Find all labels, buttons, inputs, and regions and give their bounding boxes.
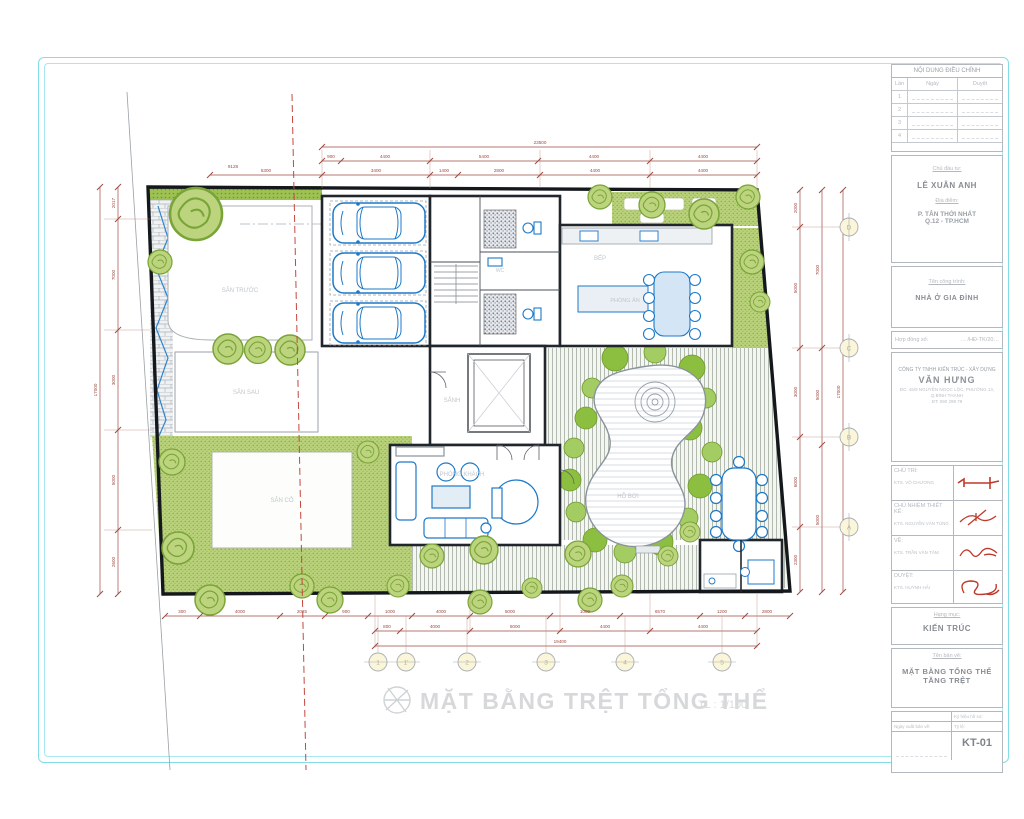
category-section: Hạng mục: KIẾN TRÚC bbox=[891, 607, 1003, 645]
svg-text:4400: 4400 bbox=[698, 168, 709, 173]
svg-text:A: A bbox=[847, 525, 852, 532]
sheet-name-line1: MẶT BẰNG TỔNG THỂ bbox=[894, 667, 1000, 676]
svg-text:300: 300 bbox=[178, 609, 186, 614]
project-section: Tên công trình: NHÀ Ở GIA ĐÌNH bbox=[891, 266, 1003, 328]
project-label: Tên công trình: bbox=[894, 279, 1000, 285]
signature-row: CHỦ TRÌ: KTS. VÕ CHƯƠNG bbox=[892, 466, 1002, 501]
svg-text:900: 900 bbox=[342, 609, 350, 614]
revision-cell bbox=[908, 130, 958, 143]
signature-row: DUYỆT: KTS. HUỲNH HẢI bbox=[892, 571, 1002, 604]
revision-cell bbox=[908, 104, 958, 117]
car-2 bbox=[333, 252, 425, 294]
contract-row: Hợp đồng số: … /HĐ-TK/20… bbox=[891, 331, 1003, 349]
client-label: Chủ đầu tư: bbox=[894, 166, 1000, 172]
revision-col-duyet: Duyệt bbox=[958, 78, 1002, 91]
svg-text:SÂN TRƯỚC: SÂN TRƯỚC bbox=[222, 287, 259, 294]
revision-cell bbox=[958, 130, 1002, 143]
revision-col-lan: Lần bbox=[892, 78, 908, 91]
svg-text:9128: 9128 bbox=[228, 164, 239, 169]
title-block-panel: NỘI DUNG ĐIỀU CHỈNH Lần Ngày Duyệt 1 2 3… bbox=[891, 64, 1003, 758]
svg-text:5400: 5400 bbox=[479, 154, 490, 159]
signatures-section: CHỦ TRÌ: KTS. VÕ CHƯƠNG CHỦ NHIỆM THIẾT … bbox=[891, 465, 1003, 604]
revision-cell bbox=[958, 91, 1002, 104]
issue-label: Ngày xuất bản vẽ: bbox=[892, 722, 952, 732]
revision-row-num: 4 bbox=[892, 130, 908, 143]
meta-section: Ký hiệu hồ sơ: Ngày xuất bản vẽ: Tỷ lệ: … bbox=[891, 711, 1003, 773]
svg-text:HỒ BƠI: HỒ BƠI bbox=[617, 493, 639, 500]
sign-name: KTS. VÕ CHƯƠNG bbox=[894, 480, 951, 485]
sign-label: VẼ: bbox=[894, 538, 951, 544]
svg-text:4000: 4000 bbox=[235, 609, 246, 614]
site-label: Địa điểm: bbox=[894, 198, 1000, 204]
svg-text:4400: 4400 bbox=[590, 168, 601, 173]
svg-text:2: 2 bbox=[465, 660, 469, 667]
drawing-title-group: MẶT BẰNG TRỆT TỔNG THỂ TL : 1/100 bbox=[384, 687, 769, 714]
svg-text:SÂN SAU: SÂN SAU bbox=[233, 389, 259, 396]
sheet-name-line2: TẦNG TRỆT bbox=[894, 676, 1000, 685]
client-section: Chủ đầu tư: LÊ XUÂN ANH Địa điểm: P. TÂN… bbox=[891, 155, 1003, 263]
signature-mark bbox=[956, 578, 1000, 598]
firm-section: CÔNG TY TNHH KIẾN TRÚC - XÂY DỰNG VĂN HƯ… bbox=[891, 352, 1003, 462]
svg-text:7000: 7000 bbox=[815, 264, 820, 275]
room-hall bbox=[430, 346, 545, 445]
contract-value: … /HĐ-TK/20… bbox=[960, 337, 999, 343]
revision-col-ngay: Ngày bbox=[908, 78, 958, 91]
site-plan-drawing: 23500 900 4400 5400 4400 4400 5300 3400 … bbox=[0, 0, 892, 819]
meta-empty-cell bbox=[892, 712, 952, 722]
north-compass-icon bbox=[384, 687, 410, 713]
signature-mark bbox=[956, 508, 1000, 528]
sheet-name-label: Tên bản vẽ: bbox=[894, 653, 1000, 659]
dim: 23500 bbox=[534, 140, 547, 145]
sign-name: KTS. TRẦN VĂN TÂM bbox=[894, 550, 951, 555]
revision-row-num: 3 bbox=[892, 117, 908, 130]
sheet-name-section: Tên bản vẽ: MẶT BẰNG TỔNG THỂ TẦNG TRỆT bbox=[891, 648, 1003, 708]
sheet-code: KT-01 bbox=[954, 734, 1000, 749]
category-label: Hạng mục: bbox=[894, 612, 1000, 618]
svg-text:4400: 4400 bbox=[589, 154, 600, 159]
svg-text:2000: 2000 bbox=[793, 202, 798, 213]
svg-text:1': 1' bbox=[404, 660, 409, 667]
svg-text:19400: 19400 bbox=[554, 639, 567, 644]
project-name: NHÀ Ở GIA ĐÌNH bbox=[894, 295, 1000, 302]
issue-value-cell bbox=[892, 732, 952, 760]
revision-table: NỘI DUNG ĐIỀU CHỈNH Lần Ngày Duyệt 1 2 3… bbox=[891, 64, 1003, 152]
svg-text:3: 3 bbox=[544, 660, 548, 667]
revision-row-num: 1 bbox=[892, 91, 908, 104]
svg-text:4000: 4000 bbox=[436, 609, 447, 614]
category-value: KIẾN TRÚC bbox=[894, 624, 1000, 633]
svg-text:PHÒNG KHÁCH: PHÒNG KHÁCH bbox=[440, 471, 485, 478]
svg-text:5000: 5000 bbox=[111, 474, 116, 485]
revision-cell bbox=[908, 91, 958, 104]
svg-text:3000: 3000 bbox=[111, 374, 116, 385]
scale-label: Tỷ lệ: bbox=[952, 722, 1002, 732]
revision-cell bbox=[908, 117, 958, 130]
svg-text:B: B bbox=[847, 435, 851, 442]
svg-text:2800: 2800 bbox=[494, 168, 505, 173]
svg-text:1000: 1000 bbox=[385, 609, 396, 614]
sign-name: KTS. NGUYỄN VĂN TÙNG bbox=[894, 521, 951, 526]
revision-header: NỘI DUNG ĐIỀU CHỈNH bbox=[892, 65, 1002, 78]
svg-text:SÂN CỎ: SÂN CỎ bbox=[270, 497, 293, 504]
svg-text:1200: 1200 bbox=[717, 609, 728, 614]
svg-text:4400: 4400 bbox=[380, 154, 391, 159]
svg-text:17000: 17000 bbox=[836, 385, 841, 398]
code-label: Ký hiệu hồ sơ: bbox=[952, 712, 1002, 722]
firm-name: VĂN HƯNG bbox=[892, 375, 1002, 385]
wc1-tiles bbox=[484, 210, 516, 248]
svg-text:5000: 5000 bbox=[815, 389, 820, 400]
contract-label: Hợp đồng số: bbox=[895, 337, 928, 343]
revision-cell bbox=[958, 104, 1002, 117]
sheet-code-cell: KT-01 bbox=[952, 732, 1002, 760]
car-1 bbox=[333, 202, 425, 244]
svg-text:2017: 2017 bbox=[111, 197, 116, 208]
sign-label: DUYỆT: bbox=[894, 573, 951, 579]
svg-text:900: 900 bbox=[327, 154, 335, 159]
signature-mark bbox=[956, 473, 1000, 493]
firm-phone: ĐT: 090 299 79 bbox=[892, 399, 1002, 405]
svg-text:800: 800 bbox=[383, 624, 391, 629]
sign-name: KTS. HUỲNH HẢI bbox=[894, 585, 951, 590]
svg-text:7000: 7000 bbox=[111, 269, 116, 280]
svg-text:WC: WC bbox=[496, 268, 505, 274]
svg-text:1400: 1400 bbox=[439, 168, 450, 173]
svg-text:3000: 3000 bbox=[793, 386, 798, 397]
site-line2: Q.12 - TP.HCM bbox=[894, 218, 1000, 225]
svg-text:SẢNH: SẢNH bbox=[444, 397, 461, 404]
svg-text:5000: 5000 bbox=[505, 609, 516, 614]
svg-text:PHÒNG ĂN: PHÒNG ĂN bbox=[610, 297, 639, 304]
svg-text:6570: 6570 bbox=[655, 609, 666, 614]
client-name: LÊ XUÂN ANH bbox=[894, 181, 1000, 190]
sign-label: CHỦ TRÌ: bbox=[894, 468, 951, 474]
svg-text:4400: 4400 bbox=[698, 154, 709, 159]
signature-row: CHỦ NHIỆM THIẾT KẾ: KTS. NGUYỄN VĂN TÙNG bbox=[892, 501, 1002, 536]
svg-text:C: C bbox=[847, 346, 852, 353]
svg-text:2300: 2300 bbox=[793, 554, 798, 565]
sign-label: CHỦ NHIỆM THIẾT KẾ: bbox=[894, 503, 951, 515]
revision-row-num: 2 bbox=[892, 104, 908, 117]
svg-text:4400: 4400 bbox=[698, 624, 709, 629]
svg-text:1000: 1000 bbox=[580, 609, 591, 614]
signature-row: VẼ: KTS. TRẦN VĂN TÂM bbox=[892, 536, 1002, 571]
svg-text:5000: 5000 bbox=[815, 514, 820, 525]
svg-text:5: 5 bbox=[720, 660, 724, 667]
svg-text:17000: 17000 bbox=[93, 383, 98, 396]
signature-mark bbox=[956, 543, 1000, 563]
car-3 bbox=[333, 302, 425, 344]
svg-text:2025: 2025 bbox=[297, 609, 308, 614]
svg-text:6000: 6000 bbox=[793, 476, 798, 487]
svg-text:4000: 4000 bbox=[430, 624, 441, 629]
wc2-tiles bbox=[484, 294, 516, 334]
svg-text:2800: 2800 bbox=[762, 609, 773, 614]
svg-text:5300: 5300 bbox=[261, 168, 272, 173]
svg-text:4: 4 bbox=[623, 660, 627, 667]
svg-text:5000: 5000 bbox=[510, 624, 521, 629]
svg-text:3400: 3400 bbox=[371, 168, 382, 173]
svg-text:D: D bbox=[847, 225, 852, 232]
plan-scale: TL : 1/100 bbox=[698, 699, 747, 711]
svg-text:4400: 4400 bbox=[600, 624, 611, 629]
firm-type-line: CÔNG TY TNHH KIẾN TRÚC - XÂY DỰNG bbox=[892, 367, 1002, 373]
drawing-sheet: 23500 900 4400 5400 4400 4400 5300 3400 … bbox=[0, 0, 1024, 819]
svg-text:1: 1 bbox=[376, 660, 380, 667]
svg-text:5000: 5000 bbox=[793, 282, 798, 293]
site-line1: P. TÂN THỚI NHẤT bbox=[894, 211, 1000, 218]
revision-cell bbox=[958, 117, 1002, 130]
svg-text:BẾP: BẾP bbox=[594, 255, 606, 262]
svg-text:2600: 2600 bbox=[111, 556, 116, 567]
